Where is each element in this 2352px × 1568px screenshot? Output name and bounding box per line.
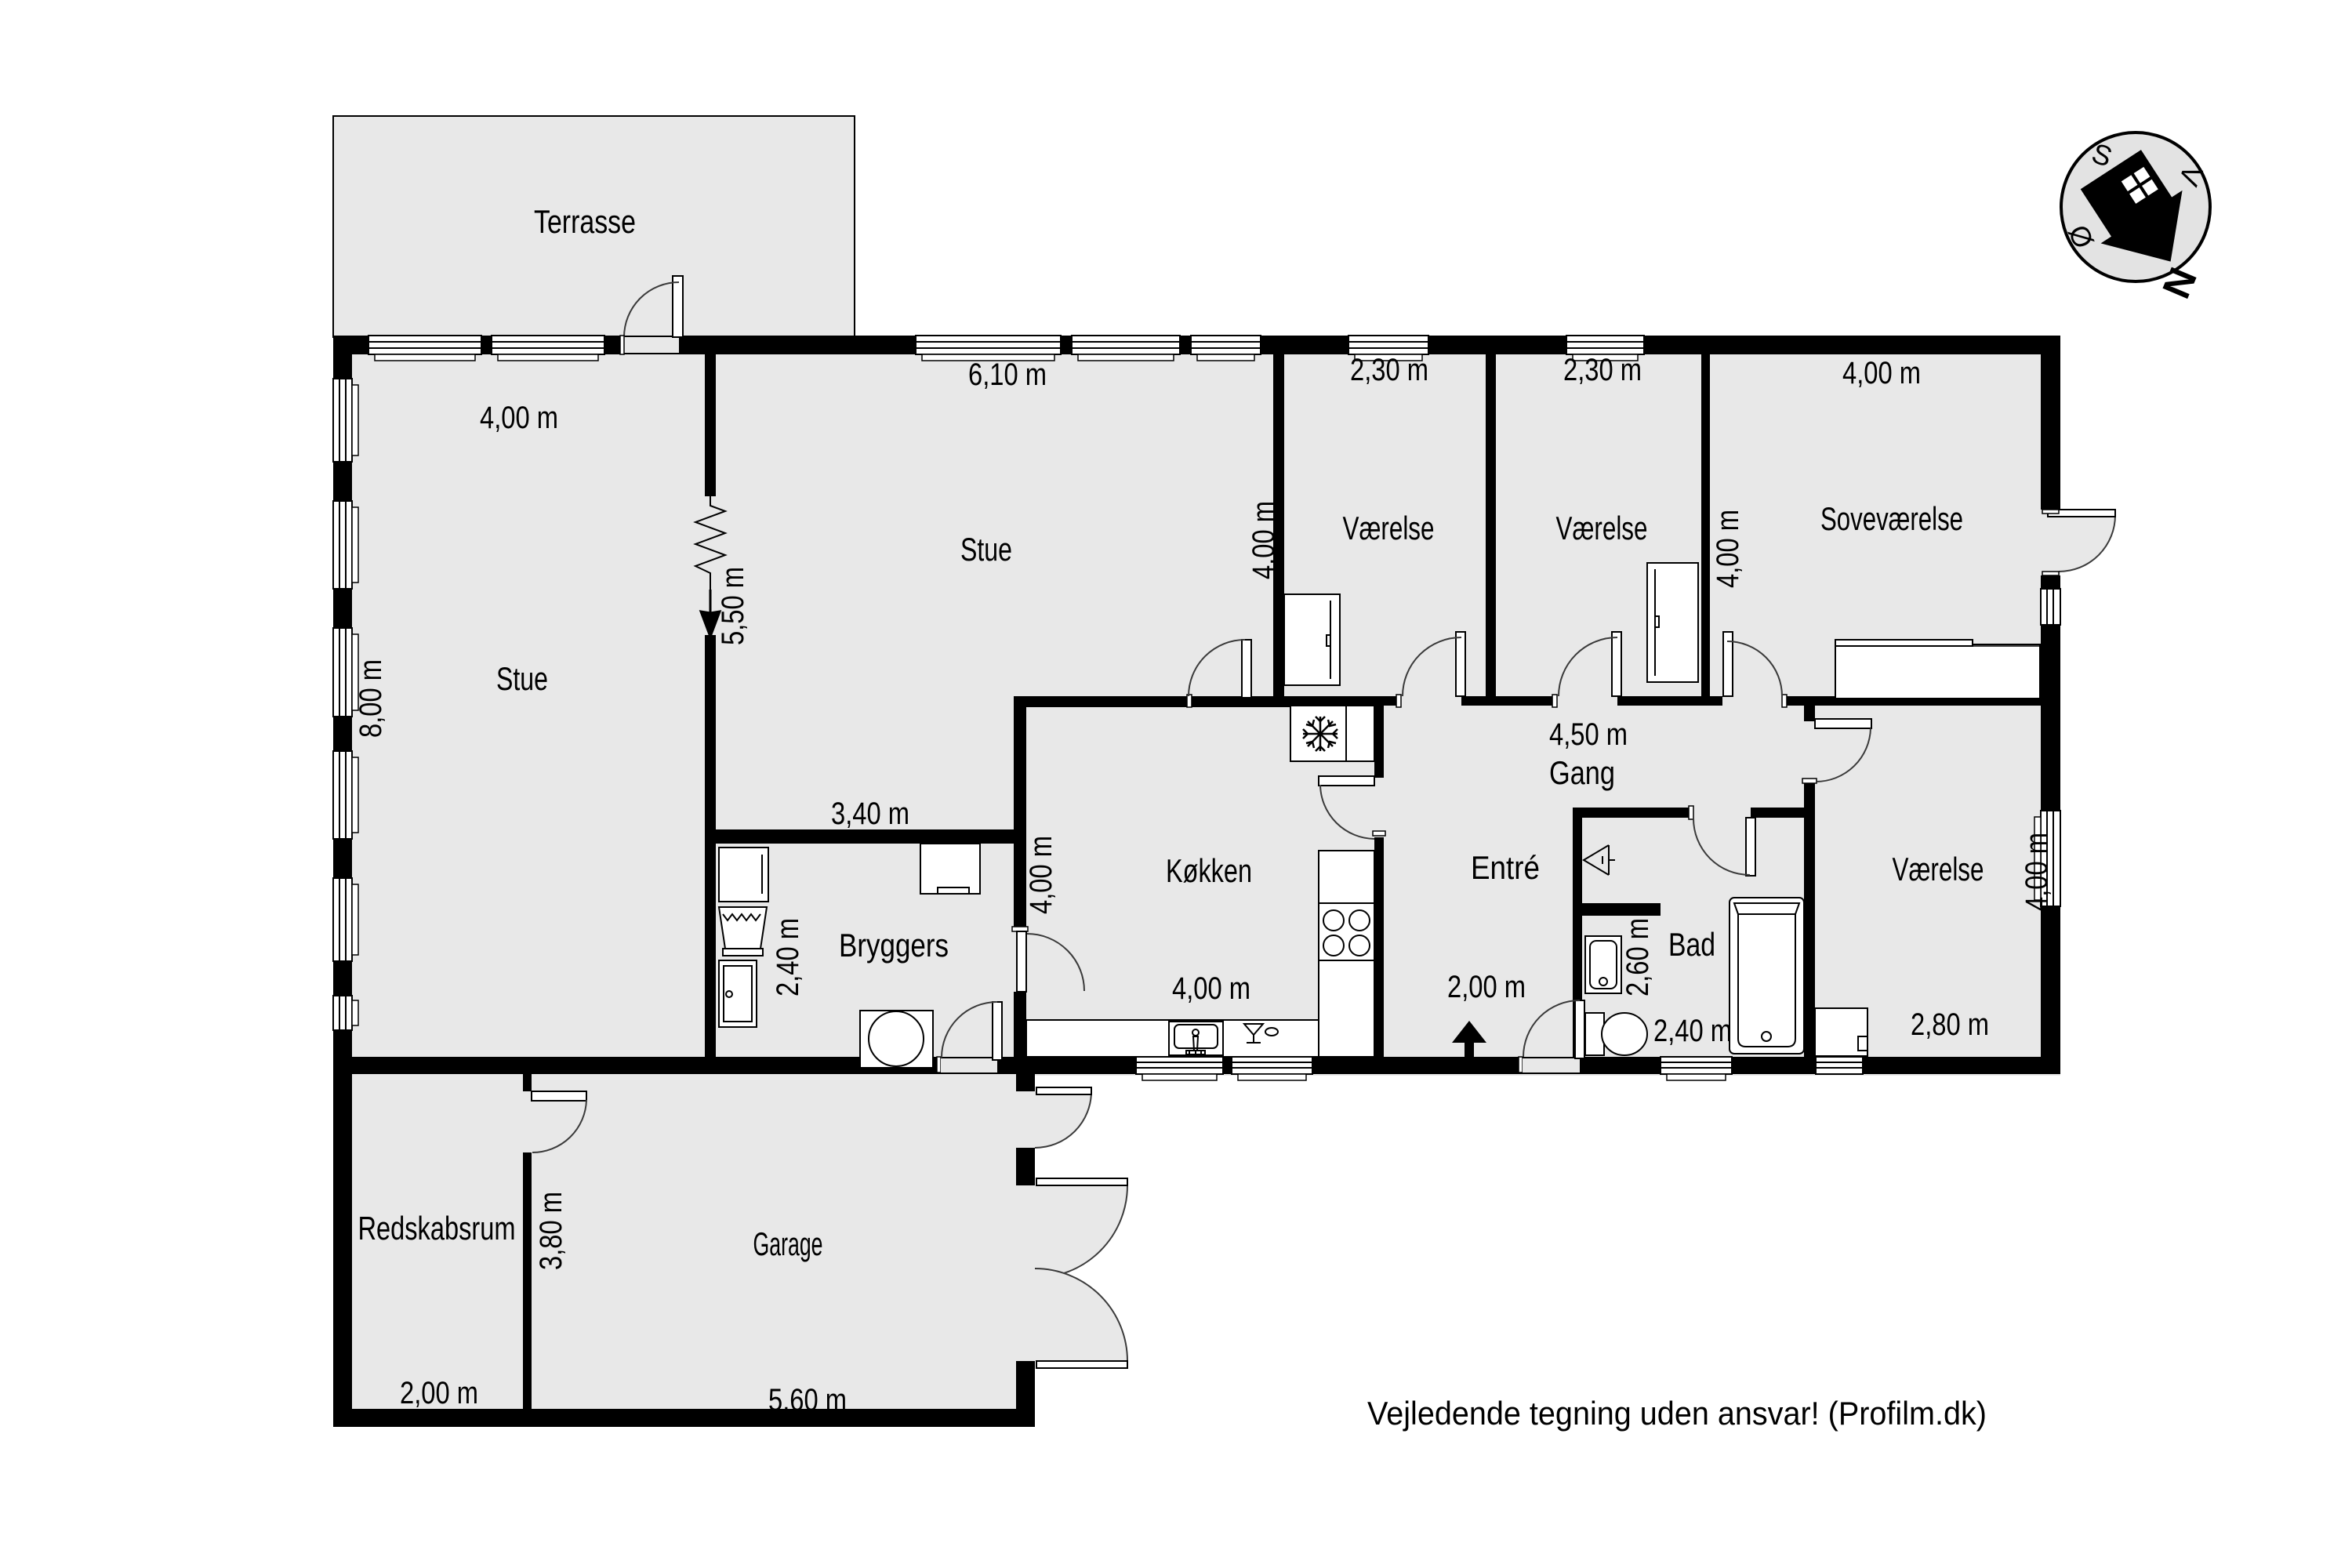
svg-text:6,10 m: 6,10 m: [968, 358, 1047, 392]
svg-text:2,60 m: 2,60 m: [1621, 918, 1655, 996]
svg-text:Værelse: Værelse: [1343, 510, 1435, 546]
svg-text:4,00 m: 4,00 m: [1842, 356, 1921, 390]
svg-text:2,00 m: 2,00 m: [400, 1376, 478, 1410]
svg-text:Stue: Stue: [960, 531, 1012, 568]
svg-text:2,80 m: 2,80 m: [1911, 1007, 1989, 1042]
svg-text:4,00 m: 4,00 m: [1172, 971, 1250, 1006]
svg-text:4,50 m: 4,50 m: [1549, 717, 1628, 752]
svg-text:Gang: Gang: [1549, 754, 1615, 791]
svg-text:2,40 m: 2,40 m: [1653, 1014, 1732, 1048]
svg-text:2,40 m: 2,40 m: [771, 918, 805, 996]
svg-text:4,00 m: 4,00 m: [2020, 833, 2054, 911]
svg-text:4,00 m: 4,00 m: [1247, 501, 1281, 579]
svg-text:3,40 m: 3,40 m: [831, 797, 909, 831]
svg-text:5,60 m: 5,60 m: [768, 1383, 847, 1417]
svg-text:Redskabsrum: Redskabsrum: [358, 1210, 516, 1247]
svg-text:2,30 m: 2,30 m: [1563, 353, 1642, 387]
svg-text:Garage: Garage: [753, 1225, 823, 1262]
svg-text:Terrasse: Terrasse: [534, 203, 636, 240]
svg-text:4,00 m: 4,00 m: [1024, 836, 1058, 914]
svg-text:Værelse: Værelse: [1556, 510, 1648, 546]
svg-text:Stue: Stue: [496, 660, 548, 697]
svg-text:Entré: Entré: [1471, 849, 1540, 886]
svg-text:2,30 m: 2,30 m: [1350, 353, 1428, 387]
svg-text:5,50 m: 5,50 m: [716, 567, 750, 645]
svg-text:Soveværelse: Soveværelse: [1820, 500, 1963, 537]
svg-text:Bad: Bad: [1668, 926, 1715, 963]
svg-text:8,00 m: 8,00 m: [354, 659, 388, 738]
svg-text:4,00 m: 4,00 m: [480, 401, 558, 435]
svg-text:Vejledende tegning uden ansvar: Vejledende tegning uden ansvar! (Profilm…: [1367, 1395, 1987, 1432]
svg-text:Bryggers: Bryggers: [839, 927, 949, 964]
svg-text:2,00 m: 2,00 m: [1447, 970, 1526, 1004]
svg-text:Køkken: Køkken: [1166, 852, 1252, 889]
svg-text:Værelse: Værelse: [1893, 851, 1984, 887]
svg-text:4,00 m: 4,00 m: [1711, 510, 1745, 588]
svg-text:3,80 m: 3,80 m: [534, 1192, 568, 1270]
